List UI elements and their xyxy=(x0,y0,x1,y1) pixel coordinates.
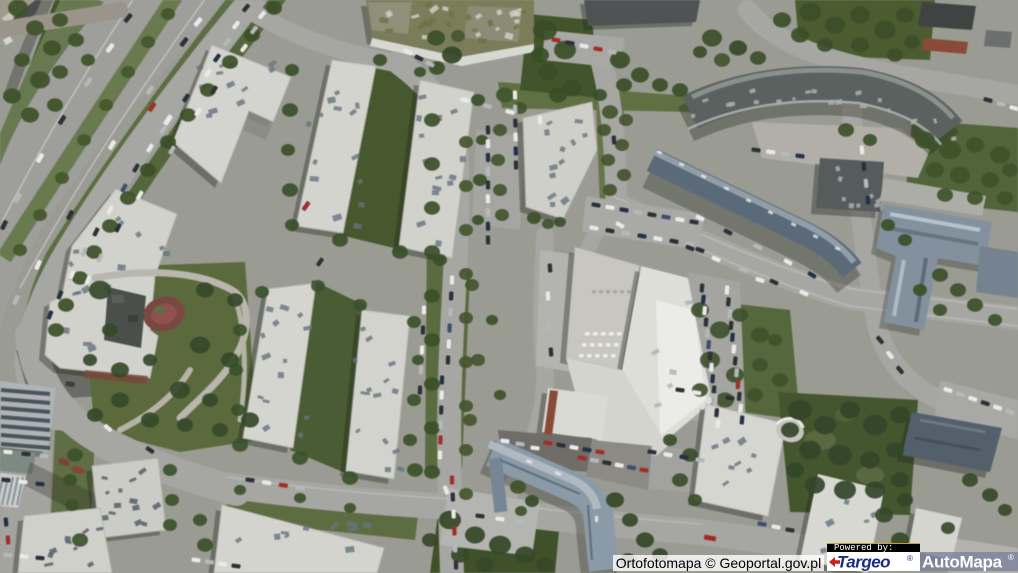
svg-text:®: ® xyxy=(1008,553,1014,562)
svg-text:Targeo: Targeo xyxy=(837,553,890,572)
svg-text:AutoMapa: AutoMapa xyxy=(922,553,1003,572)
svg-text:®: ® xyxy=(907,554,913,563)
